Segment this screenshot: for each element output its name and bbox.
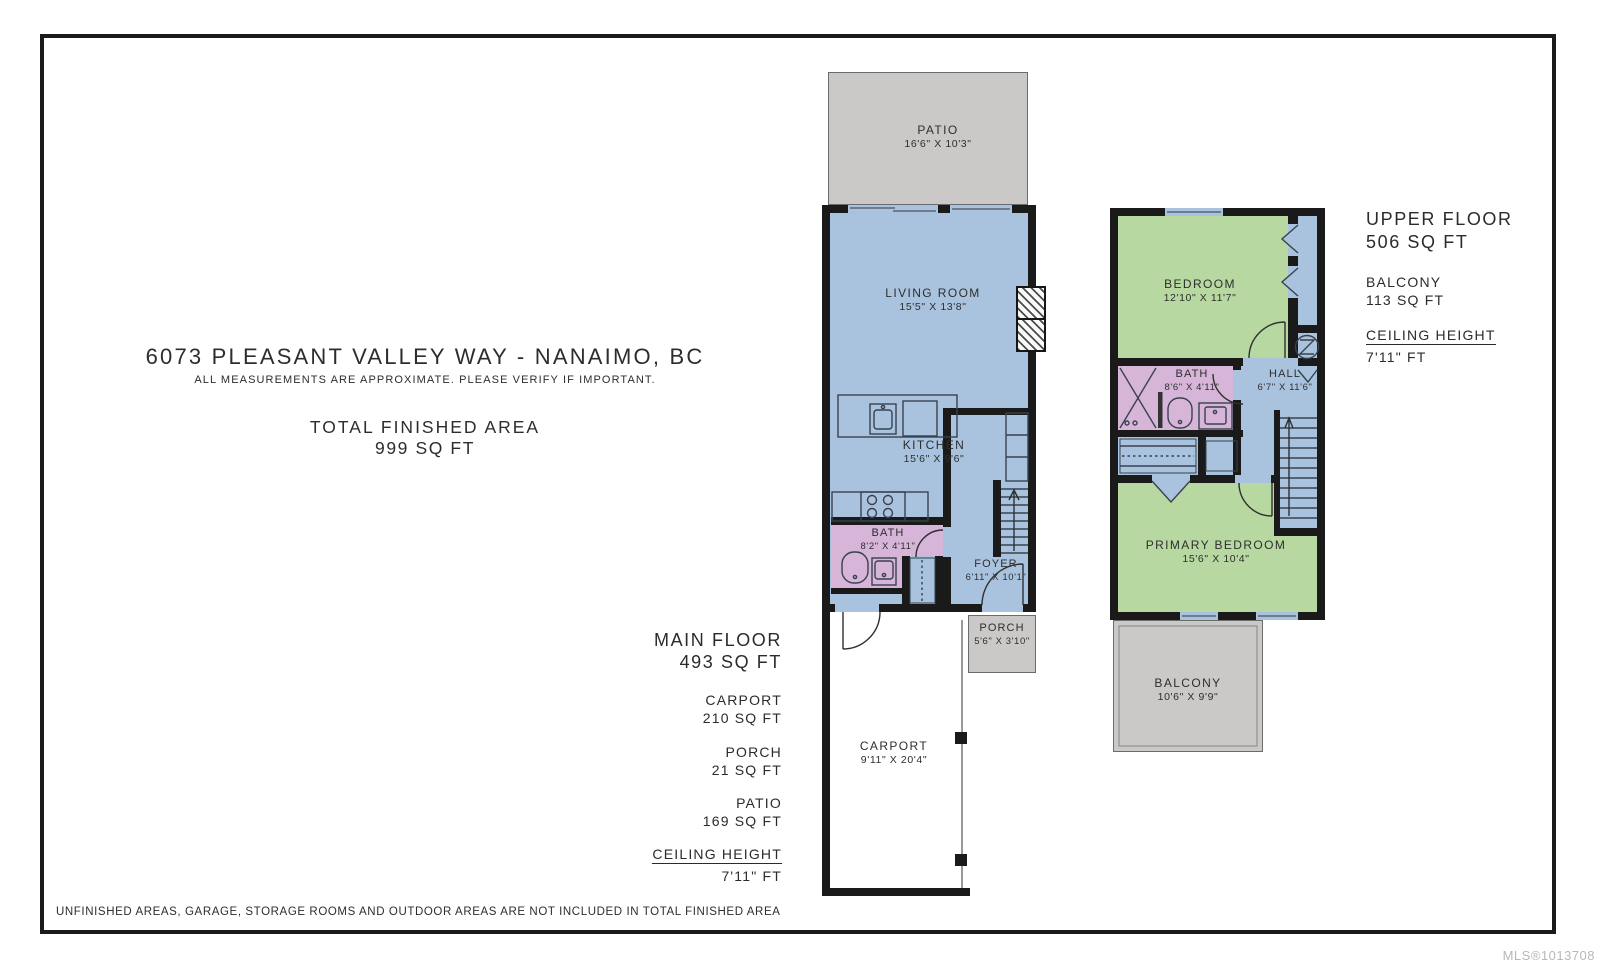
carport-post xyxy=(955,732,967,744)
front-door-opening xyxy=(982,604,1023,612)
mls-watermark: MLS®1013708 xyxy=(1503,948,1595,963)
upper-bath-door-opening xyxy=(1233,370,1241,400)
carport-post xyxy=(955,854,967,866)
ceiling-height-label: CEILING HEIGHT xyxy=(652,847,782,864)
upper-stair-railing-wall xyxy=(1274,410,1280,528)
fireplace-icon xyxy=(1016,286,1046,320)
carport-left-wall xyxy=(822,612,830,896)
main-closet-area xyxy=(910,556,935,604)
summary-item-value: 113 SQ FT xyxy=(1366,293,1586,307)
room-label-living-room: LIVING ROOM 15'5" X 13'8" xyxy=(885,287,980,313)
upper-closet-wall xyxy=(1198,437,1206,475)
carport-door-opening xyxy=(835,604,879,612)
floor-plan-page: 6073 PLEASANT VALLEY WAY - NANAIMO, BC A… xyxy=(0,0,1600,970)
room-label-carport: CARPORT 9'11" X 20'4" xyxy=(860,740,928,766)
summary-item-label: BALCONY xyxy=(1366,275,1586,289)
bath-bottom-wall xyxy=(831,588,902,594)
room-label-primary-bedroom: PRIMARY BEDROOM 15'6" X 10'4" xyxy=(1146,539,1287,565)
bedroom-wall-opening xyxy=(1288,266,1298,298)
room-label-hall: HALL 6'7" X 11'6" xyxy=(1258,369,1313,393)
bedroom-door-opening xyxy=(1249,358,1285,366)
main-floor-summary: MAIN FLOOR 493 SQ FT CARPORT 210 SQ FT P… xyxy=(542,631,782,883)
ceiling-height-label: CEILING HEIGHT xyxy=(1366,328,1496,345)
upper-bath-bottom-wall xyxy=(1118,430,1243,437)
room-label-balcony: BALCONY 10'6" X 9'9" xyxy=(1154,677,1221,703)
kitchen-foyer-wall xyxy=(943,415,951,527)
page-frame xyxy=(40,34,1556,934)
total-area-label: TOTAL FINISHED AREA xyxy=(125,417,725,438)
room-label-kitchen: KITCHEN 15'6" X 9'6" xyxy=(903,439,965,465)
ceiling-height-value: 7'11" FT xyxy=(542,869,782,883)
room-label-upper-bath: BATH 8'6" X 4'11" xyxy=(1165,369,1220,393)
sliding-door-window xyxy=(848,205,938,213)
room-label-bath: BATH 8'2" X 4'11" xyxy=(861,528,916,552)
kitchen-pantry-wall xyxy=(943,408,1036,415)
fireplace-icon xyxy=(1016,318,1046,352)
stair-railing-wall xyxy=(993,480,1001,557)
summary-item-value: 21 SQ FT xyxy=(542,763,782,777)
upper-bath-top-wall xyxy=(1118,358,1243,366)
upper-floor-label: UPPER FLOOR xyxy=(1366,210,1586,228)
primary-door-opening xyxy=(1235,475,1271,483)
footer-disclaimer: UNFINISHED AREAS, GARAGE, STORAGE ROOMS … xyxy=(56,906,780,918)
bedroom-window xyxy=(1165,208,1223,216)
primary-window xyxy=(1180,612,1218,620)
upper-stair-bottom-wall xyxy=(1274,528,1317,536)
main-floor-area: 493 SQ FT xyxy=(542,653,782,671)
room-label-porch: PORCH 5'6" X 3'10" xyxy=(974,623,1030,647)
upper-floor-summary: UPPER FLOOR 506 SQ FT BALCONY 113 SQ FT … xyxy=(1366,210,1586,364)
total-area-value: 999 SQ FT xyxy=(125,438,725,459)
room-label-foyer: FOYER 6'11" X 10'1" xyxy=(966,559,1027,583)
summary-item-value: 169 SQ FT xyxy=(542,814,782,828)
upper-floor-area: 506 SQ FT xyxy=(1366,233,1586,251)
page-title: 6073 PLEASANT VALLEY WAY - NANAIMO, BC xyxy=(125,344,725,370)
measurements-note: ALL MEASUREMENTS ARE APPROXIMATE. PLEASE… xyxy=(125,374,725,386)
summary-item-label: CARPORT xyxy=(542,693,782,707)
bedroom-wall-opening xyxy=(1288,224,1298,256)
primary-window-opening xyxy=(1152,475,1190,483)
carport-bottom-wall xyxy=(822,888,970,896)
closet-left-wall xyxy=(902,556,910,604)
carport-open-edge xyxy=(961,620,963,888)
summary-item-value: 210 SQ FT xyxy=(542,711,782,725)
alcove-cap-wall xyxy=(1298,358,1317,366)
summary-item-label: PATIO xyxy=(542,796,782,810)
summary-item-label: PORCH xyxy=(542,745,782,759)
ceiling-height-value: 7'11" FT xyxy=(1366,350,1586,364)
room-label-bedroom: BEDROOM 12'10" X 11'7" xyxy=(1164,278,1237,304)
room-label-patio: PATIO 16'6" X 10'3" xyxy=(904,124,971,150)
closet-cap-wall xyxy=(1298,325,1317,333)
main-floor-label: MAIN FLOOR xyxy=(542,631,782,649)
living-window xyxy=(950,205,1012,213)
closet-right-wall xyxy=(935,556,943,604)
balcony-door xyxy=(1256,612,1298,620)
bath-door-opening xyxy=(943,527,951,557)
bath-top-wall xyxy=(831,517,943,525)
kitchen-foyer-wall xyxy=(943,557,951,604)
